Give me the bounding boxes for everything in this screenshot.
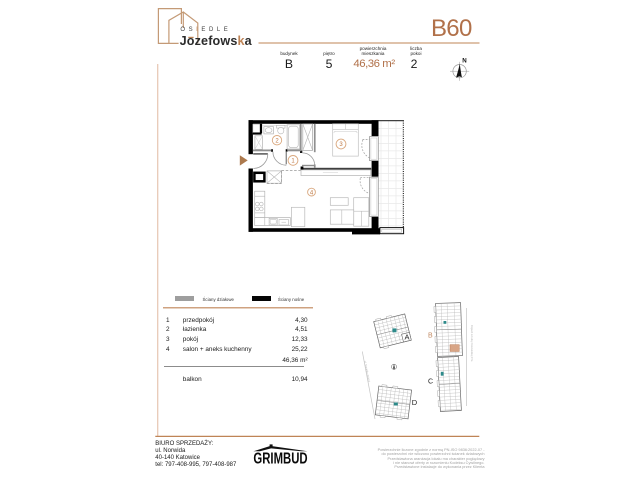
svg-text:B: B [428, 333, 433, 340]
svg-text:D: D [412, 398, 418, 407]
svg-text:GRIMBUD: GRIMBUD [253, 450, 307, 467]
svg-text:ul. Norwida dojazd: ul. Norwida dojazd [363, 360, 371, 382]
svg-text:A: A [405, 333, 410, 342]
svg-text:Dojazd od ulicy Katowickiej 97: Dojazd od ulicy Katowickiej 97a [470, 325, 474, 362]
svg-text:N: N [462, 57, 467, 64]
svg-text:C: C [428, 379, 433, 386]
